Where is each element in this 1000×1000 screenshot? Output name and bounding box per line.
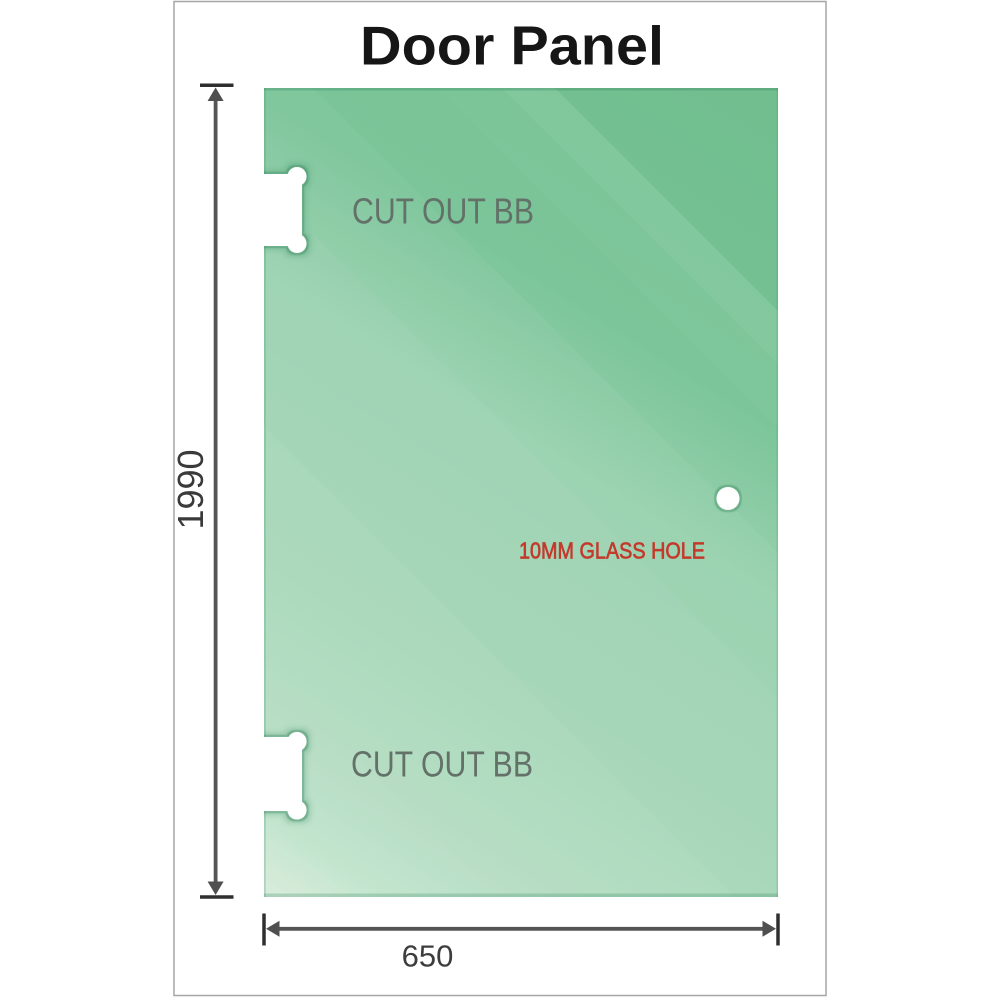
svg-text:10MM GLASS HOLE: 10MM GLASS HOLE: [519, 538, 705, 564]
svg-text:650: 650: [402, 939, 454, 974]
svg-text:Door Panel: Door Panel: [360, 15, 664, 77]
svg-text:CUT OUT BB: CUT OUT BB: [352, 191, 534, 232]
svg-text:CUT OUT BB: CUT OUT BB: [351, 744, 533, 785]
svg-text:1990: 1990: [170, 449, 211, 529]
